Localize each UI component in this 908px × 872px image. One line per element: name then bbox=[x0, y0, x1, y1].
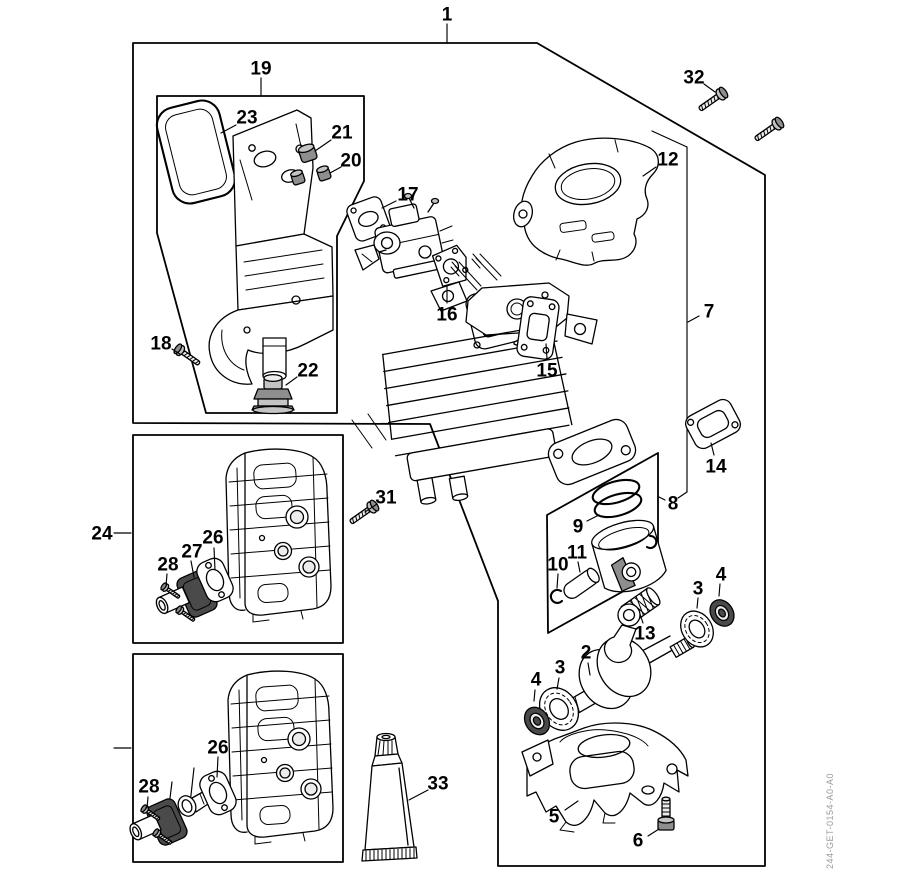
air-filter-gasket-drawing bbox=[153, 97, 239, 208]
cylinder-gasket-15-drawing bbox=[516, 296, 560, 360]
leader-line bbox=[534, 690, 535, 701]
part-number-label: 11 bbox=[567, 543, 588, 564]
part-number-label: 26 bbox=[207, 738, 228, 759]
muffler-lower-drawing bbox=[228, 671, 333, 844]
filter-plug-20-drawing bbox=[316, 165, 332, 182]
leader-line bbox=[719, 584, 720, 596]
part-number-label: 9 bbox=[573, 517, 584, 538]
part-number-label: 31 bbox=[375, 488, 397, 509]
leader-line bbox=[315, 140, 331, 151]
part-number-label: 22 bbox=[297, 361, 318, 382]
piston-drawing bbox=[589, 515, 669, 598]
leader-line bbox=[382, 201, 396, 208]
exhaust-gasket-14-drawing bbox=[682, 396, 743, 451]
part-number-label: 8 bbox=[668, 494, 679, 515]
part-number-label: 26 bbox=[202, 528, 223, 549]
part-number-label: 14 bbox=[705, 457, 727, 478]
leader-line bbox=[704, 84, 715, 92]
part-number-label: 4 bbox=[531, 670, 542, 691]
leader-line bbox=[286, 377, 297, 385]
part-number-label: 27 bbox=[181, 542, 202, 563]
part-number-label: 13 bbox=[634, 624, 655, 645]
part-number-label: 20 bbox=[340, 151, 361, 172]
part-number-label: 15 bbox=[536, 361, 558, 382]
part-number-label: 19 bbox=[250, 59, 271, 80]
part-number-label: 3 bbox=[555, 658, 566, 679]
leader-line bbox=[688, 316, 699, 322]
part-number-label: 2 bbox=[581, 643, 592, 664]
sealant-tube-drawing bbox=[362, 734, 417, 862]
exploded-view-canvas: 1192321201716151273214891011132343456243… bbox=[0, 0, 908, 872]
leader-line bbox=[648, 829, 659, 836]
part-number-label: 6 bbox=[633, 831, 644, 852]
leader-line bbox=[659, 497, 665, 500]
crankcase-screw-6-drawing bbox=[658, 797, 674, 830]
part-number-label: 28 bbox=[138, 777, 159, 798]
part-number-label: 33 bbox=[427, 774, 448, 795]
part-number-label: 4 bbox=[716, 565, 727, 586]
leader-line bbox=[557, 574, 558, 588]
leader-line bbox=[578, 562, 580, 572]
part-number-label: 12 bbox=[657, 150, 678, 171]
part-number-label: 1 bbox=[442, 5, 453, 26]
part-number-label: 5 bbox=[549, 807, 560, 828]
part-number-label: 16 bbox=[436, 305, 457, 326]
cylinder-drawing bbox=[352, 282, 639, 510]
part-number-label: 21 bbox=[331, 123, 353, 144]
part-number-label: 28 bbox=[157, 555, 178, 576]
muffler-drawing bbox=[226, 449, 331, 622]
part-number-label: 24 bbox=[91, 524, 113, 545]
part-number-label: 10 bbox=[547, 555, 568, 576]
leader-line bbox=[697, 598, 698, 608]
leader-line bbox=[587, 515, 599, 521]
engine-shroud-drawing bbox=[511, 138, 659, 265]
part-number-label: 17 bbox=[397, 185, 418, 206]
intake-boot-22-drawing bbox=[252, 375, 294, 414]
mount-screw-32b-drawing bbox=[752, 116, 785, 144]
part-number-label: 18 bbox=[150, 334, 171, 355]
part-number-label: 7 bbox=[704, 302, 715, 323]
pin-circlip-drawing bbox=[551, 590, 562, 603]
doc-number: 244-GET-0154-A0-A0 bbox=[825, 773, 835, 869]
leader-line bbox=[330, 167, 341, 173]
piston-rings-drawing bbox=[590, 475, 644, 521]
part-number-label: 3 bbox=[693, 579, 704, 600]
part-number-label: 32 bbox=[683, 68, 704, 89]
part-number-label: 23 bbox=[236, 108, 257, 129]
parts-diagram-page: 1192321201716151273214891011132343456243… bbox=[0, 0, 908, 872]
leader-line bbox=[409, 790, 428, 800]
